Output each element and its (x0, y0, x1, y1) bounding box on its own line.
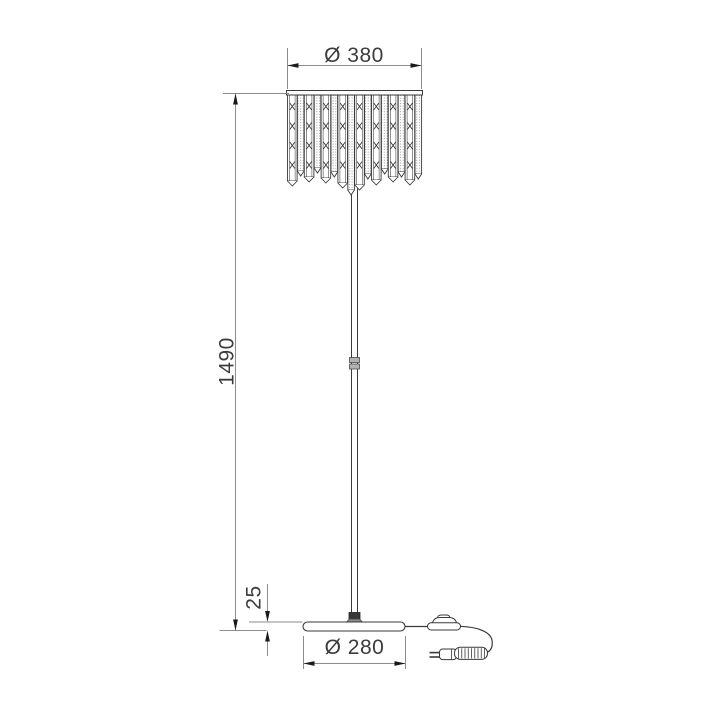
arrow-right (395, 661, 406, 666)
crystal-strip-dot (415, 95, 422, 179)
crystal-strip-dot (314, 95, 321, 173)
crystal-strip-dot (398, 95, 405, 177)
crystal-strip-x (338, 95, 348, 188)
arrow-up (233, 94, 238, 105)
arrow-left (288, 63, 299, 68)
dim-label-shade-diameter: Ø 380 (324, 44, 384, 67)
arrow-right (411, 63, 422, 68)
inline-switch (428, 615, 461, 630)
crystal-strip-dot (381, 95, 388, 174)
technical-drawing-canvas: Ø 380 1490 25 Ø 280 (0, 0, 720, 720)
dim-label-base-thickness: 25 (243, 585, 266, 609)
arrow-down (265, 611, 270, 622)
coiled-cord (455, 647, 488, 659)
crystal-strip-dot (348, 95, 355, 195)
shade-crystal-strips (288, 95, 422, 195)
lamp (287, 91, 493, 660)
lamp-base (303, 622, 405, 631)
dim-label-total-height: 1490 (216, 337, 239, 386)
arrow-up (265, 631, 270, 642)
dimension-base-diameter: Ø 280 (304, 636, 406, 669)
dimension-shade-diameter: Ø 380 (288, 44, 422, 89)
crystal-strip-x (304, 95, 314, 182)
crystal-strip-dot (331, 95, 338, 177)
dim-label-base-diameter: Ø 280 (325, 636, 385, 659)
power-plug (430, 649, 457, 660)
crystal-strip-dot (365, 95, 372, 179)
pole-ferrule (347, 613, 363, 623)
arrow-left (304, 661, 315, 666)
floor-lamp-drawing: Ø 380 1490 25 Ø 280 (0, 0, 720, 720)
power-cord (405, 615, 492, 660)
crystal-strip-x (288, 95, 298, 186)
crystal-strip-x (388, 95, 398, 182)
shade-top-rail (287, 91, 423, 96)
crystal-strip-x (321, 95, 331, 183)
dimension-total-height: 1490 (216, 94, 290, 631)
crystal-strip-x (405, 95, 415, 185)
crystal-strip-dot (297, 95, 304, 176)
arrow-down (233, 620, 238, 631)
dimension-base-thickness: 25 (243, 584, 303, 656)
crystal-strip-x (372, 95, 382, 185)
crystal-strip-x (355, 95, 365, 190)
